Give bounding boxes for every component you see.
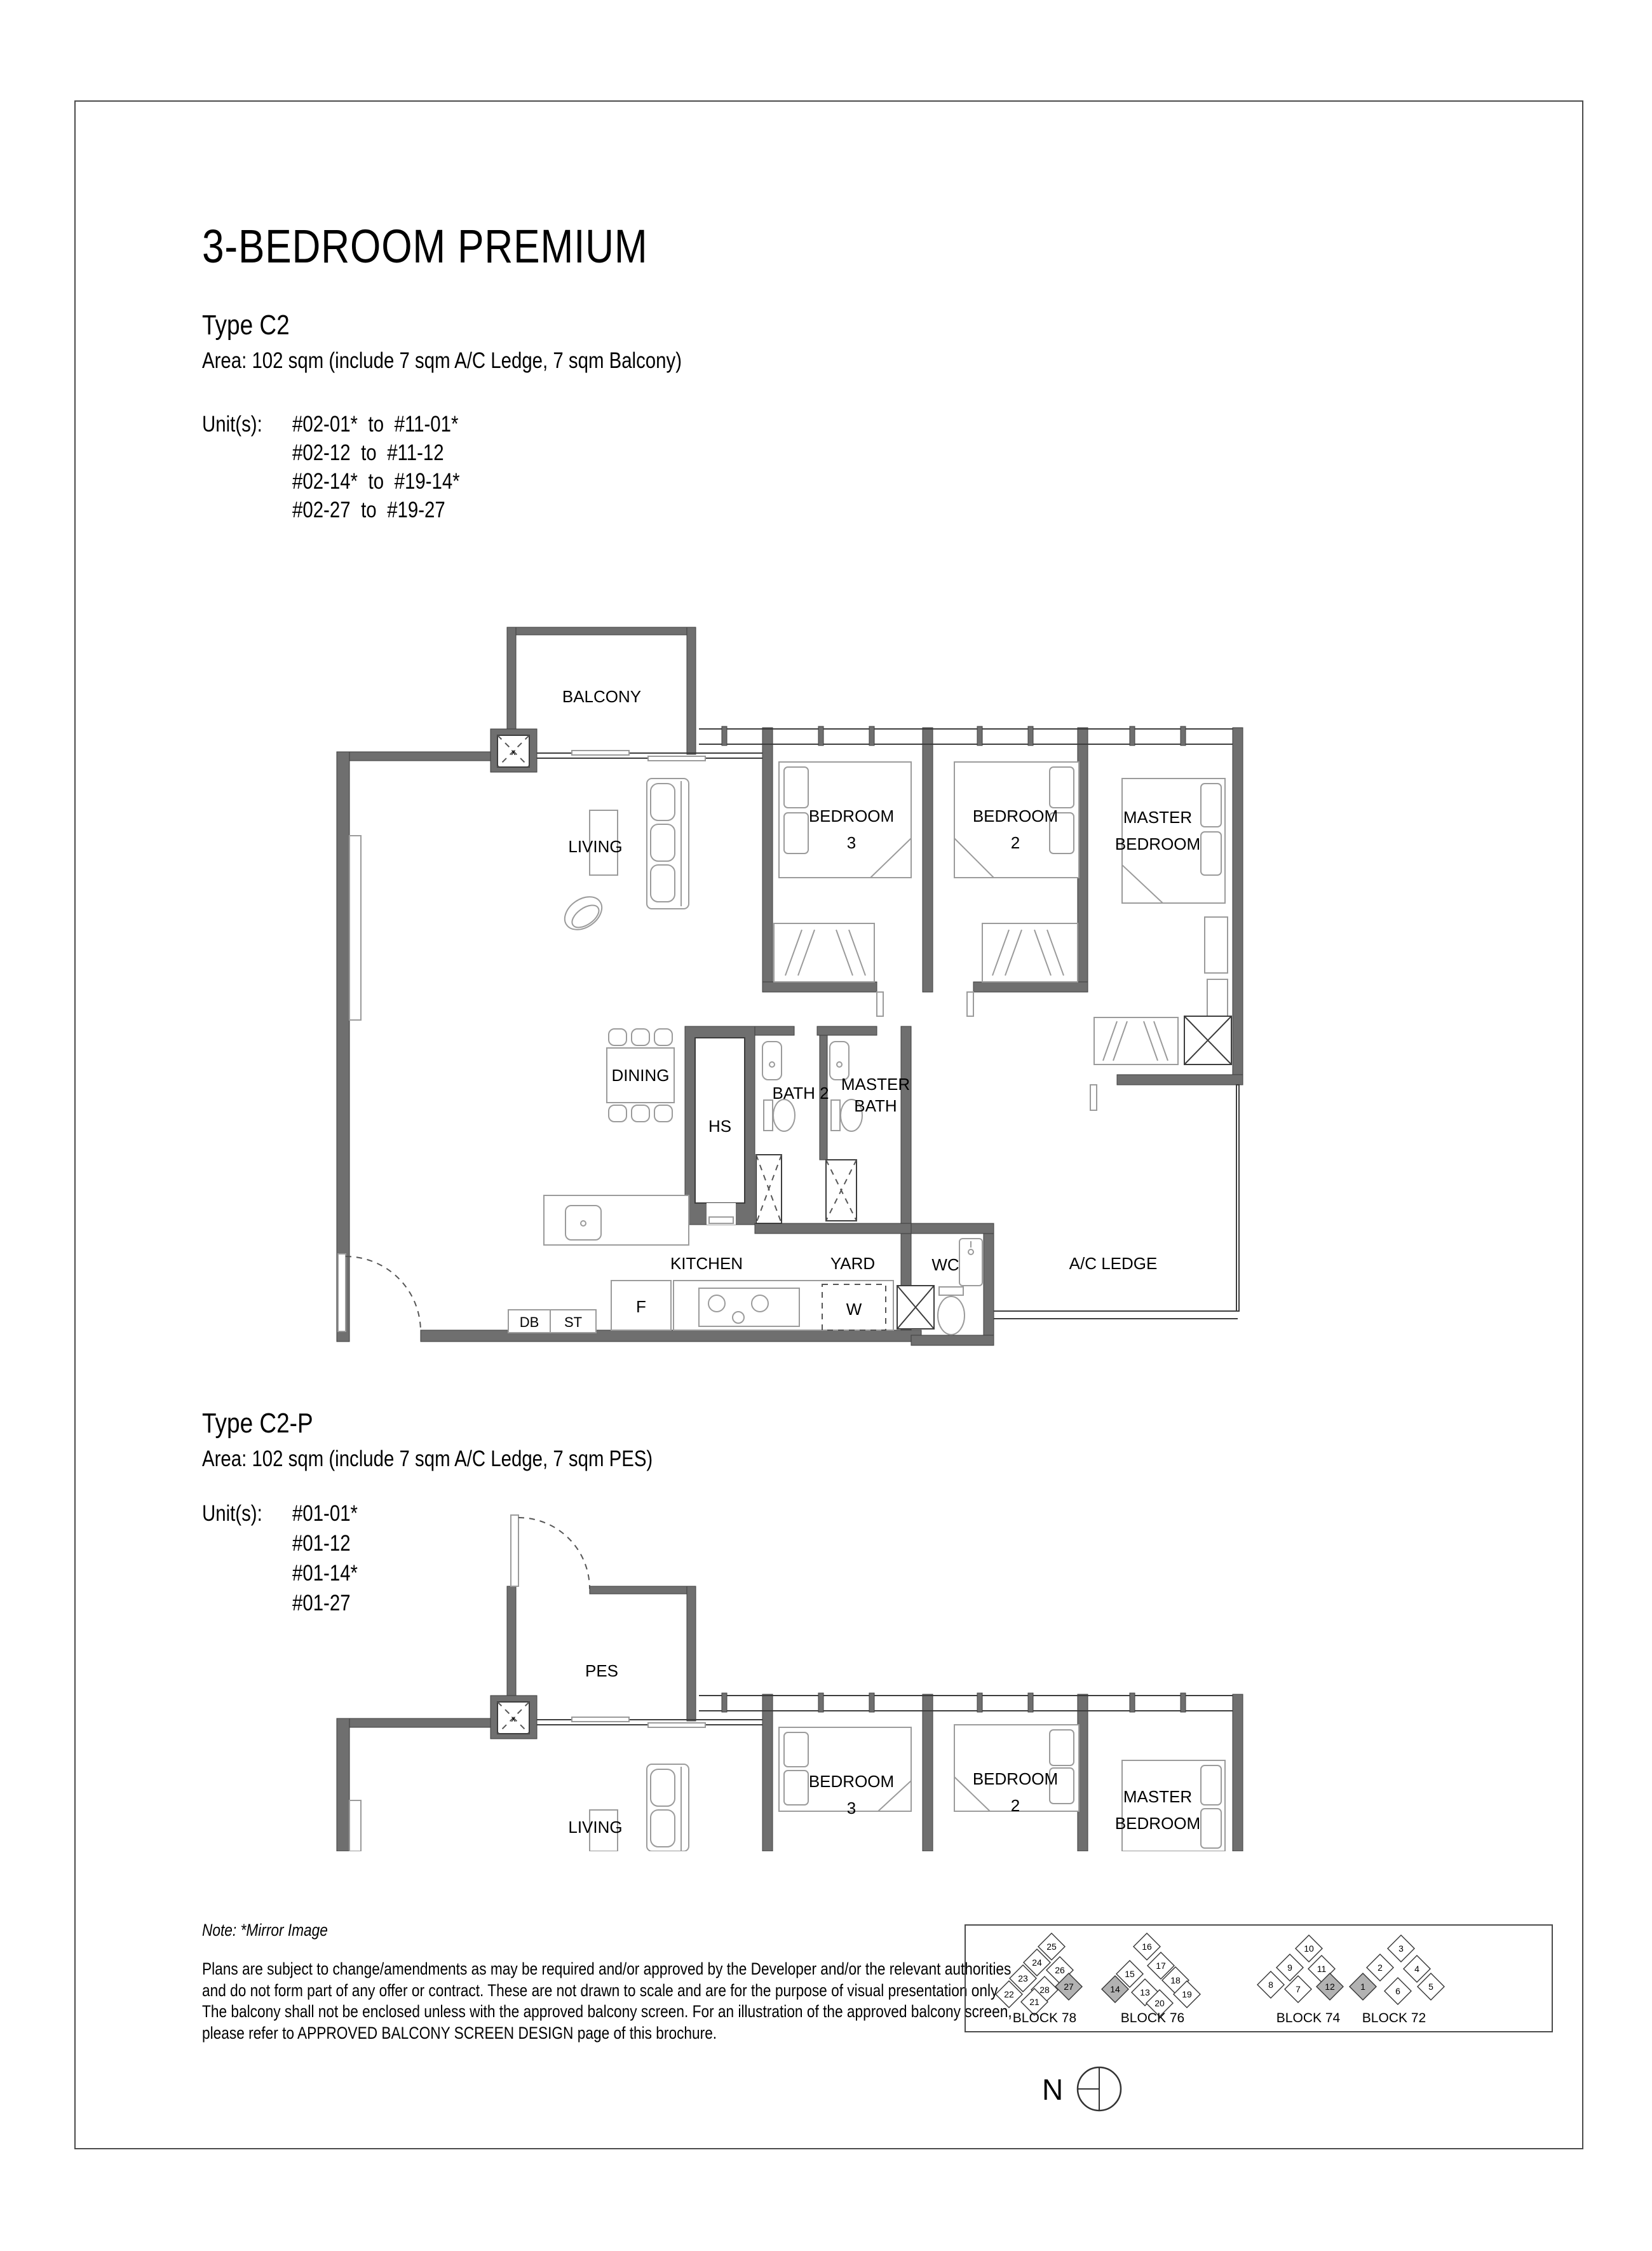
walls bbox=[337, 627, 1243, 1345]
key-plan-unit-number: 14 bbox=[1110, 1984, 1120, 1994]
key-plan-unit-number: 23 bbox=[1018, 1973, 1028, 1983]
washer-label: W bbox=[846, 1300, 862, 1319]
type-c2-area: Area: 102 sqm (include 7 sqm A/C Ledge, … bbox=[202, 348, 682, 374]
db-label: DB bbox=[520, 1314, 539, 1330]
key-plan-unit-number: 10 bbox=[1304, 1943, 1314, 1954]
sliding-door bbox=[516, 1717, 762, 1727]
master-bedroom-furniture bbox=[1090, 779, 1231, 1110]
aircon-unit-icon: x bbox=[491, 1696, 537, 1739]
wc-label: WC bbox=[931, 1255, 959, 1274]
pes-label: PES bbox=[585, 1661, 618, 1680]
key-plan-unit-number: 24 bbox=[1032, 1957, 1042, 1968]
north-arrow-icon: N bbox=[1017, 2054, 1182, 2124]
key-plan-unit-number: 26 bbox=[1055, 1965, 1065, 1975]
svg-text:x: x bbox=[511, 747, 516, 757]
key-plan-unit-number: 20 bbox=[1154, 1998, 1165, 2008]
brochure-page: 3-BEDROOM PREMIUM Type C2 Area: 102 sqm … bbox=[0, 0, 1652, 2251]
aircon-unit-icon: x bbox=[491, 729, 537, 772]
master-bedroom-label2: BEDROOM bbox=[1115, 834, 1200, 853]
key-plan-unit-number: 15 bbox=[1125, 1969, 1135, 1979]
key-plan-unit-number: 2 bbox=[1378, 1962, 1383, 1973]
disclaimer-line: Plans are subject to change/amendments a… bbox=[202, 1959, 1012, 1980]
ac-ledge-boundary bbox=[994, 1085, 1239, 1319]
key-plan-unit-number: 21 bbox=[1029, 1997, 1039, 2007]
sliding-door bbox=[516, 751, 762, 761]
living-label: LIVING bbox=[568, 837, 622, 856]
key-plan-unit-number: 7 bbox=[1296, 1984, 1301, 1994]
key-plan-unit-number: 9 bbox=[1287, 1962, 1292, 1973]
kitchen-label: KITCHEN bbox=[670, 1254, 743, 1273]
unit-range: #02-14* to #19-14* bbox=[292, 469, 460, 498]
key-plan-box: 2524262328272221BLOCK 781617151814132019… bbox=[965, 1924, 1553, 2032]
window-band bbox=[699, 1693, 1233, 1712]
st-label: ST bbox=[564, 1314, 582, 1330]
master-bedroom-label: MASTER bbox=[1123, 1787, 1192, 1806]
hs-label: HS bbox=[708, 1117, 731, 1136]
key-plan-unit-number: 5 bbox=[1428, 1982, 1433, 1992]
key-plan-unit-number: 3 bbox=[1398, 1943, 1404, 1954]
type-c2p-units-label: Unit(s): bbox=[202, 1501, 262, 1527]
type-c2p-area: Area: 102 sqm (include 7 sqm A/C Ledge, … bbox=[202, 1446, 653, 1472]
key-plan-unit-number: 22 bbox=[1004, 1989, 1014, 1999]
key-plan-unit-number: 18 bbox=[1170, 1975, 1181, 1985]
key-plan-unit-number: 17 bbox=[1156, 1961, 1166, 1971]
master-bedroom-label2: BEDROOM bbox=[1115, 1814, 1200, 1833]
key-plan-unit-number: 19 bbox=[1182, 1989, 1192, 1999]
bedroom2-number: 2 bbox=[1011, 1796, 1020, 1815]
key-plan-unit-number: 27 bbox=[1064, 1982, 1074, 1992]
window-band bbox=[699, 726, 1233, 745]
living-label: LIVING bbox=[568, 1818, 622, 1837]
wc-fixtures bbox=[938, 1239, 982, 1335]
bedroom3-label: BEDROOM bbox=[809, 1772, 894, 1791]
key-plan-block-label: BLOCK 74 bbox=[1276, 2011, 1341, 2025]
key-plan-unit-number: 4 bbox=[1414, 1964, 1419, 1974]
balcony-label: BALCONY bbox=[562, 687, 641, 706]
bedroom3-furniture bbox=[774, 762, 911, 1016]
bedroom2-furniture bbox=[954, 762, 1079, 1016]
dining-label: DINING bbox=[612, 1066, 670, 1085]
type-c2p-name: Type C2-P bbox=[202, 1408, 313, 1439]
ac-ledge-label: A/C LEDGE bbox=[1069, 1254, 1158, 1273]
type-c2-units-list: #02-01* to #11-01* #02-12 to #11-12 #02-… bbox=[292, 412, 492, 526]
entry-door bbox=[338, 1254, 421, 1331]
fridge-label: F bbox=[636, 1297, 646, 1316]
key-plan: 2524262328272221BLOCK 781617151814132019… bbox=[966, 1926, 1552, 2031]
key-plan-unit-number: 28 bbox=[1039, 1985, 1050, 1995]
key-plan-unit-number: 13 bbox=[1140, 1987, 1150, 1997]
key-plan-block-label: BLOCK 78 bbox=[1013, 2011, 1076, 2025]
key-plan-unit-number: 16 bbox=[1142, 1942, 1152, 1952]
key-plan-unit-number: 6 bbox=[1395, 1986, 1400, 1996]
unit-range: #02-27 to #19-27 bbox=[292, 498, 460, 526]
floor-plan-type-c2: x bbox=[318, 626, 1309, 1350]
bedroom2-label: BEDROOM bbox=[973, 1769, 1058, 1788]
key-plan-block-label: BLOCK 72 bbox=[1362, 2011, 1426, 2025]
living-furniture bbox=[349, 1764, 689, 1851]
master-bath-label2: BATH bbox=[854, 1096, 897, 1115]
page-title: 3-BEDROOM PREMIUM bbox=[202, 219, 648, 273]
bedroom3-label: BEDROOM bbox=[809, 806, 894, 826]
key-plan-unit-number: 12 bbox=[1325, 1982, 1335, 1992]
pes-gate-door bbox=[511, 1515, 590, 1589]
type-c2-name: Type C2 bbox=[202, 309, 290, 341]
bedroom3-number: 3 bbox=[847, 1799, 856, 1818]
disclaimer-line: The balcony shall not be enclosed unless… bbox=[202, 2001, 1012, 2023]
disclaimer-line: and do not form part of any offer or con… bbox=[202, 1980, 1012, 2002]
living-furniture bbox=[349, 779, 689, 1020]
type-c2-units-label: Unit(s): bbox=[202, 412, 262, 437]
unit-range: #02-01* to #11-01* bbox=[292, 412, 460, 440]
north-label: N bbox=[1042, 2073, 1063, 2106]
key-plan-unit-number: 25 bbox=[1046, 1942, 1057, 1952]
master-bedroom-label: MASTER bbox=[1123, 808, 1192, 827]
yard-label: YARD bbox=[830, 1254, 875, 1273]
bedroom2-label: BEDROOM bbox=[973, 806, 1058, 826]
key-plan-unit-number: 8 bbox=[1268, 1980, 1273, 1990]
disclaimer-line: please refer to APPROVED BALCONY SCREEN … bbox=[202, 2023, 1012, 2044]
unit-range: #02-12 to #11-12 bbox=[292, 440, 460, 469]
key-plan-block-label: BLOCK 76 bbox=[1121, 2011, 1184, 2025]
svg-text:x: x bbox=[511, 1713, 516, 1724]
master-bath-label: MASTER bbox=[841, 1075, 910, 1094]
key-plan-unit-number: 11 bbox=[1317, 1964, 1327, 1974]
bedroom3-number: 3 bbox=[847, 833, 856, 852]
bedroom2-number: 2 bbox=[1011, 833, 1020, 852]
mirror-image-note: Note: *Mirror Image bbox=[202, 1921, 328, 1940]
bedroom3-furniture bbox=[779, 1727, 911, 1811]
bath2-label: BATH 2 bbox=[772, 1084, 829, 1103]
floor-plan-type-c2p: x PES LIVING BEDROOM bbox=[318, 1511, 1309, 1851]
key-plan-unit-number: 1 bbox=[1360, 1982, 1365, 1992]
